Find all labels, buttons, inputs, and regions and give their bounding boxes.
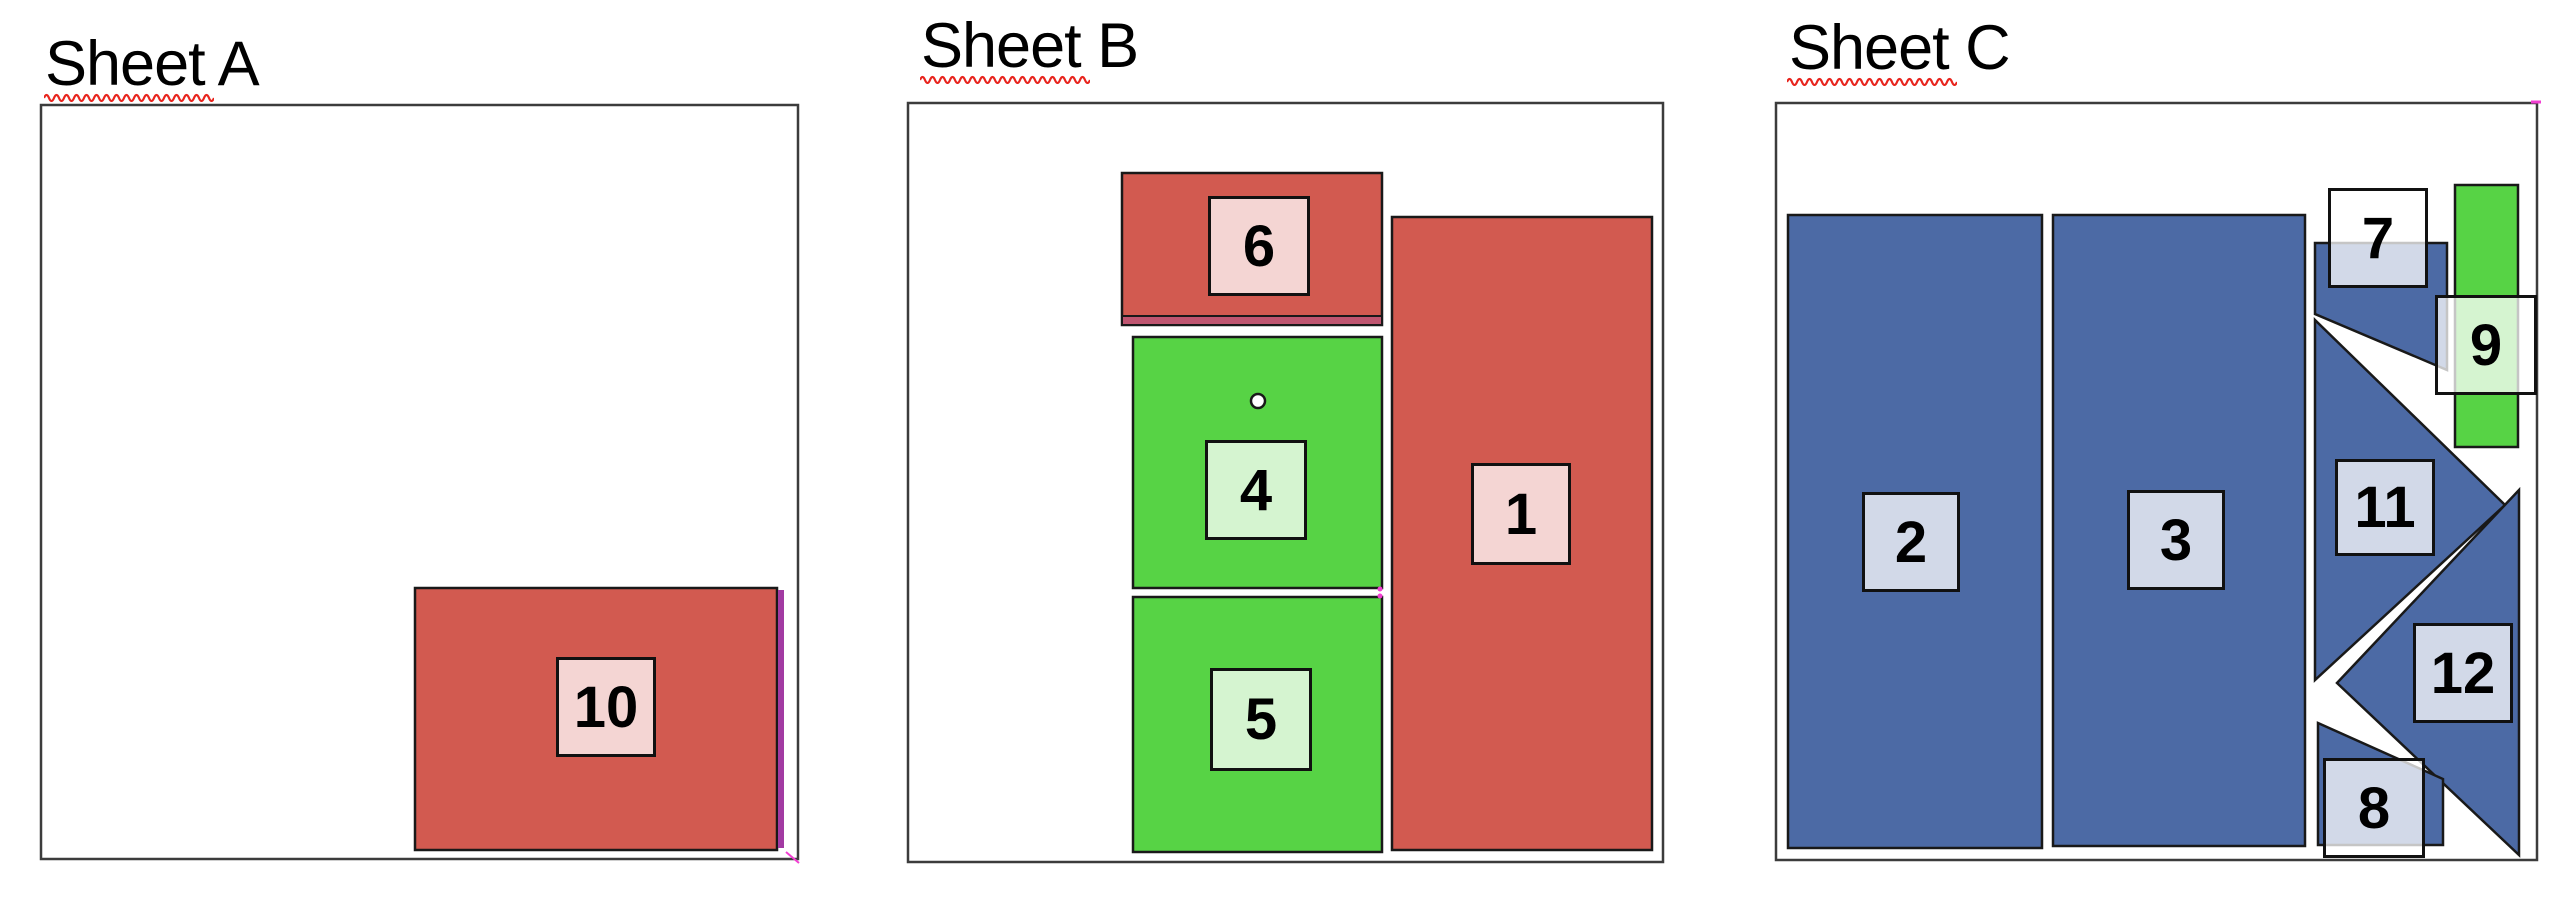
part-5-label: 5 — [1210, 668, 1312, 771]
part-2-label: 2 — [1862, 492, 1960, 592]
part-4-label: 4 — [1205, 440, 1307, 540]
sheet-title: Sheet B — [921, 15, 1138, 78]
offcut-sliver — [778, 590, 784, 848]
offcut-sliver — [1123, 317, 1381, 324]
part-11-label: 11 — [2335, 459, 2435, 556]
part-4-hole — [1251, 394, 1265, 408]
sheet-title: Sheet A — [45, 33, 259, 96]
nesting-diagram: Sheet A10Sheet B6451Sheet C237911128 — [0, 0, 2567, 913]
squiggle-path — [44, 95, 214, 101]
part-10-label: 10 — [556, 657, 656, 757]
spellcheck-squiggle-icon — [44, 92, 214, 102]
part-6-label: 6 — [1208, 196, 1310, 296]
part-9-label: 9 — [2435, 295, 2537, 395]
sheet-title: Sheet C — [1789, 17, 2010, 80]
spellcheck-squiggle-icon — [1787, 76, 1957, 86]
squiggle-path — [1787, 79, 1957, 85]
part-12-label: 12 — [2413, 623, 2513, 723]
part-7-label: 7 — [2328, 188, 2428, 288]
part-3-label: 3 — [2127, 490, 2225, 590]
squiggle-path — [920, 77, 1090, 83]
part-1-label: 1 — [1471, 463, 1571, 565]
marker-dot — [1378, 594, 1383, 599]
marker-dot — [1378, 587, 1383, 592]
part-8-label: 8 — [2323, 758, 2425, 858]
spellcheck-squiggle-icon — [920, 74, 1090, 84]
